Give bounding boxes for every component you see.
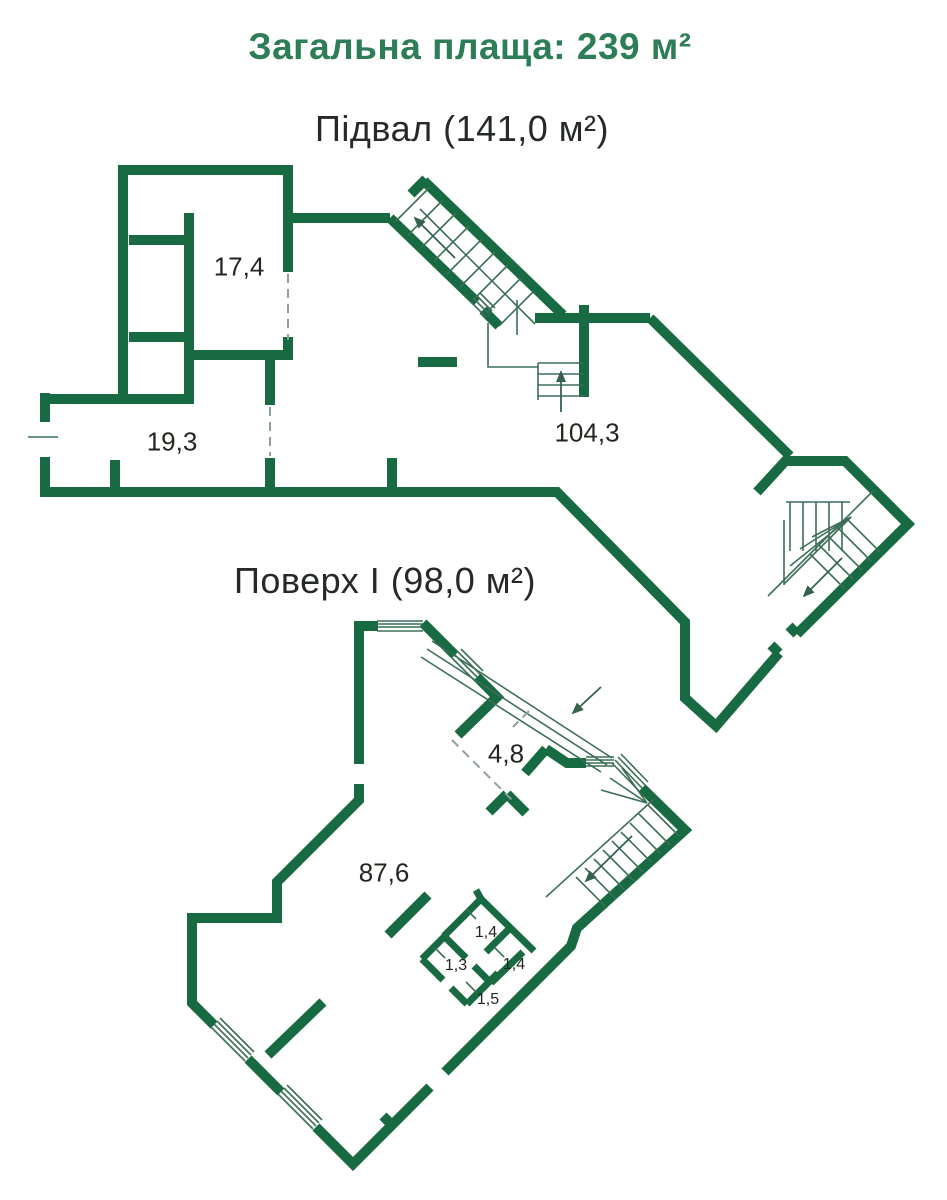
room-area-label: 1,3 — [445, 957, 467, 975]
basement-stair-arrows — [415, 218, 842, 596]
room-area-label: 1,4 — [475, 924, 497, 942]
stair-arrow-down-icon — [573, 687, 601, 713]
room-area-label: 1,4 — [503, 956, 525, 974]
first-floor-small-rooms-walls — [422, 890, 534, 1004]
room-area-label: 19,3 — [147, 427, 198, 458]
first-floor-walls — [192, 621, 685, 1164]
room-area-label: 17,4 — [214, 252, 265, 283]
room-area-label: 4,8 — [488, 739, 524, 770]
room-area-label: 1,5 — [477, 991, 499, 1009]
basement-entry-stairs — [395, 187, 584, 400]
first-floor-plan — [192, 621, 685, 1164]
room-area-label: 104,3 — [554, 418, 619, 449]
room-area-label: 87,6 — [359, 858, 410, 889]
floorplan-page: Загальна плаща: 239 м² Підвал (141,0 м²)… — [0, 0, 947, 1200]
basement-winder-stairs — [768, 490, 880, 596]
floor-plan-drawing — [0, 0, 947, 1200]
